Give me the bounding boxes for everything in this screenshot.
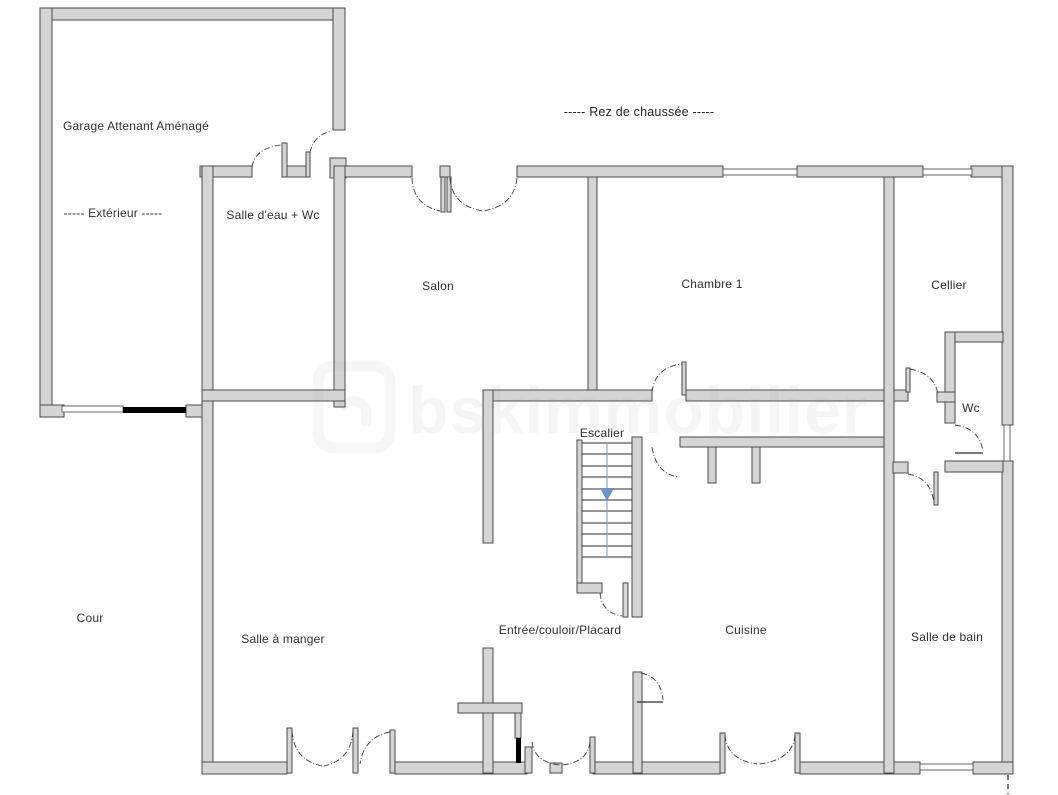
- room-label-cellier: Cellier: [931, 278, 966, 292]
- garage-door-bar: [123, 407, 186, 413]
- room-label-escalier: Escalier: [580, 426, 624, 440]
- room-label-salle-de-bain: Salle de bain: [911, 630, 983, 644]
- floorplan: bskimmobilier ----- Rez de chaussée ----…: [0, 0, 1058, 795]
- area-label-cour: Cour: [77, 611, 104, 625]
- room-label-salle-deau: Salle d'eau + Wc: [226, 208, 319, 222]
- watermark-logo-icon: [318, 366, 390, 448]
- room-label-chambre1: Chambre 1: [681, 277, 742, 291]
- room-label-wc: Wc: [962, 401, 980, 415]
- room-label-entree: Entrée/couloir/Placard: [499, 623, 621, 637]
- room-label-garage: Garage Attenant Aménagé: [63, 119, 209, 133]
- area-label-exterieur: ----- Extérieur -----: [64, 206, 163, 220]
- room-label-salon: Salon: [422, 279, 454, 293]
- door-leaf-lines: [637, 453, 983, 702]
- room-label-cuisine: Cuisine: [725, 623, 766, 637]
- floor-title: ----- Rez de chaussée -----: [564, 105, 715, 119]
- flue-black-bar: [516, 738, 521, 763]
- watermark-text: bskimmobilier: [408, 372, 868, 448]
- room-label-salle-a-manger: Salle à manger: [241, 632, 325, 646]
